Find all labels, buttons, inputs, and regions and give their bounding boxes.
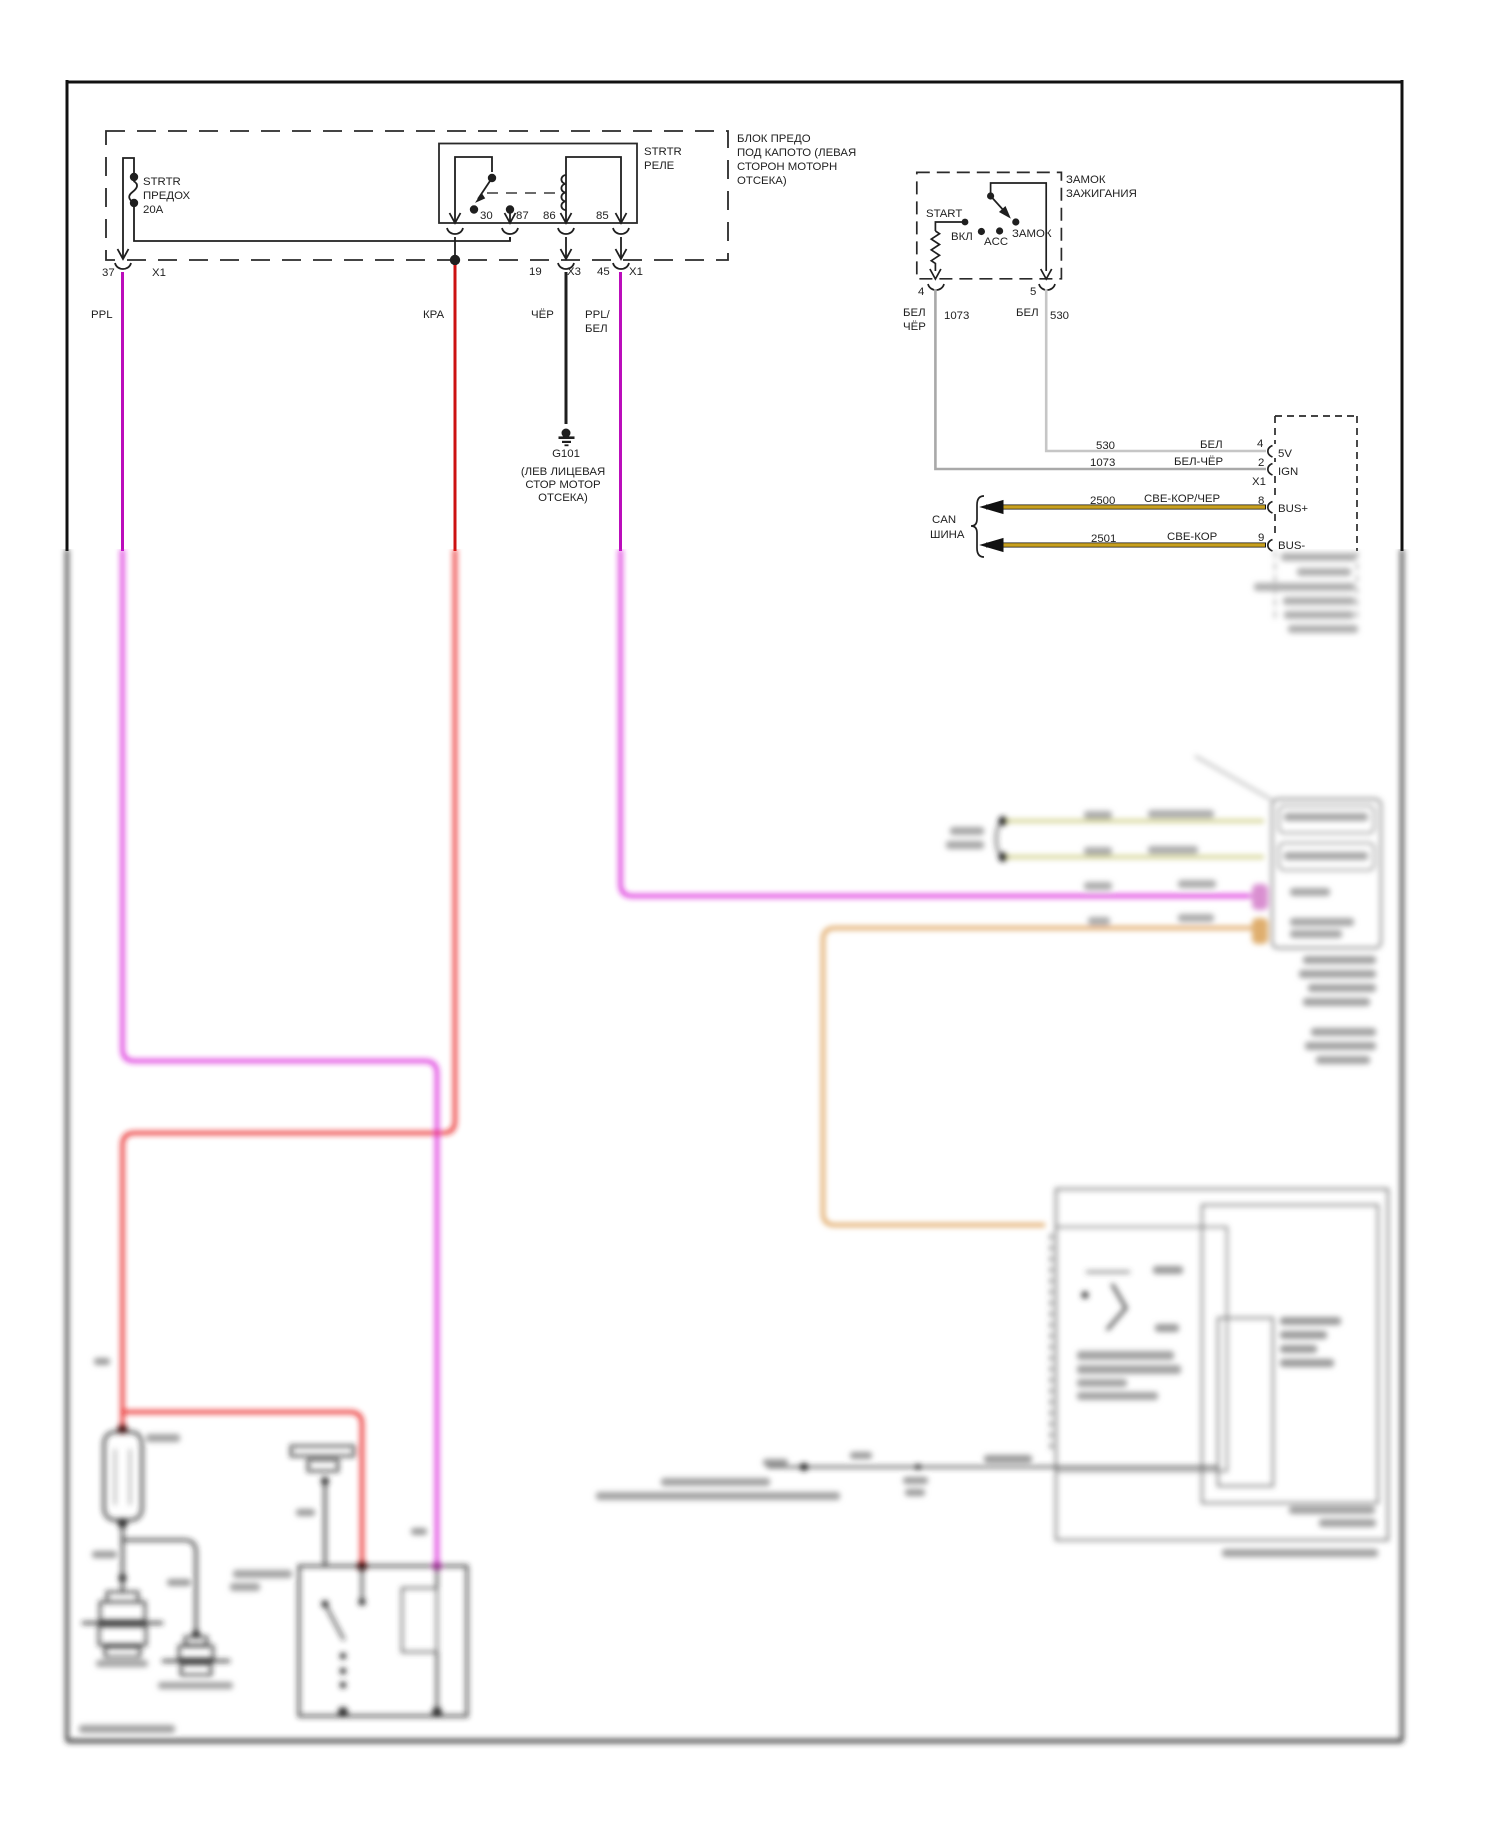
svg-text:X1: X1	[1252, 476, 1266, 488]
svg-text:STRTR: STRTR	[644, 146, 682, 158]
svg-text:ВКЛ: ВКЛ	[951, 231, 973, 243]
svg-text:CAN: CAN	[932, 514, 956, 526]
svg-text:9: 9	[1258, 532, 1264, 544]
svg-text:КРА: КРА	[423, 309, 444, 321]
svg-text:ЗАЖИГАНИЯ: ЗАЖИГАНИЯ	[1066, 188, 1137, 200]
svg-text:5V: 5V	[1278, 448, 1292, 460]
svg-text:ОТСЕКА): ОТСЕКА)	[737, 175, 787, 187]
svg-text:530: 530	[1050, 310, 1069, 322]
svg-text:4: 4	[918, 286, 924, 298]
svg-text:4: 4	[1257, 438, 1263, 450]
svg-text:1073: 1073	[1090, 457, 1115, 469]
svg-text:БЕЛ-ЧЁР: БЕЛ-ЧЁР	[1174, 456, 1223, 468]
svg-text:СВЕ-КОР/ЧЕР: СВЕ-КОР/ЧЕР	[1144, 493, 1220, 505]
svg-text:БЛОК ПРЕДО: БЛОК ПРЕДО	[737, 133, 811, 145]
svg-text:BUS+: BUS+	[1278, 503, 1308, 515]
svg-text:ACC: ACC	[984, 236, 1008, 248]
svg-text:ЗАМОК: ЗАМОК	[1012, 228, 1052, 240]
svg-text:20A: 20A	[143, 204, 164, 216]
svg-text:30: 30	[480, 210, 493, 222]
svg-text:5: 5	[1030, 286, 1036, 298]
svg-text:85: 85	[596, 210, 609, 222]
svg-text:IGN: IGN	[1278, 466, 1298, 478]
svg-text:2: 2	[1258, 457, 1264, 469]
svg-text:ЗАМОК: ЗАМОК	[1066, 174, 1106, 186]
svg-text:X3: X3	[567, 266, 581, 278]
svg-text:86: 86	[543, 210, 556, 222]
svg-text:РЕЛЕ: РЕЛЕ	[644, 160, 675, 172]
svg-text:45: 45	[597, 266, 610, 278]
svg-text:ПОД КАПОТО (ЛЕВАЯ: ПОД КАПОТО (ЛЕВАЯ	[737, 147, 856, 159]
svg-text:БЕЛ: БЕЛ	[1016, 307, 1039, 319]
svg-text:БЕЛ: БЕЛ	[585, 323, 608, 335]
svg-text:G101: G101	[552, 448, 580, 460]
svg-text:СТОР МОТОР: СТОР МОТОР	[525, 479, 600, 491]
svg-text:STRTR: STRTR	[143, 176, 181, 188]
svg-text:X1: X1	[152, 267, 166, 279]
svg-text:19: 19	[529, 266, 542, 278]
svg-text:PPL/: PPL/	[585, 309, 611, 321]
svg-text:ШИНА: ШИНА	[930, 529, 965, 541]
svg-text:ЧЁР: ЧЁР	[531, 309, 554, 321]
svg-text:X1: X1	[629, 266, 643, 278]
svg-text:START: START	[926, 208, 962, 220]
svg-text:БЕЛ: БЕЛ	[1200, 439, 1223, 451]
svg-text:СТОРОН МОТОРН: СТОРОН МОТОРН	[737, 161, 837, 173]
svg-text:530: 530	[1096, 440, 1115, 452]
svg-text:ЧЁР: ЧЁР	[903, 321, 926, 333]
svg-text:87: 87	[516, 210, 529, 222]
svg-text:ПРЕДОХ: ПРЕДОХ	[143, 190, 190, 202]
svg-text:PPL: PPL	[91, 309, 113, 321]
svg-text:37: 37	[102, 267, 115, 279]
svg-text:БЕЛ: БЕЛ	[903, 307, 926, 319]
svg-text:СВЕ-КОР: СВЕ-КОР	[1167, 531, 1217, 543]
svg-text:ОТСЕКА): ОТСЕКА)	[538, 492, 588, 504]
svg-text:1073: 1073	[944, 310, 969, 322]
svg-text:BUS-: BUS-	[1278, 540, 1305, 552]
svg-text:(ЛЕВ ЛИЦЕВАЯ: (ЛЕВ ЛИЦЕВАЯ	[521, 466, 605, 478]
